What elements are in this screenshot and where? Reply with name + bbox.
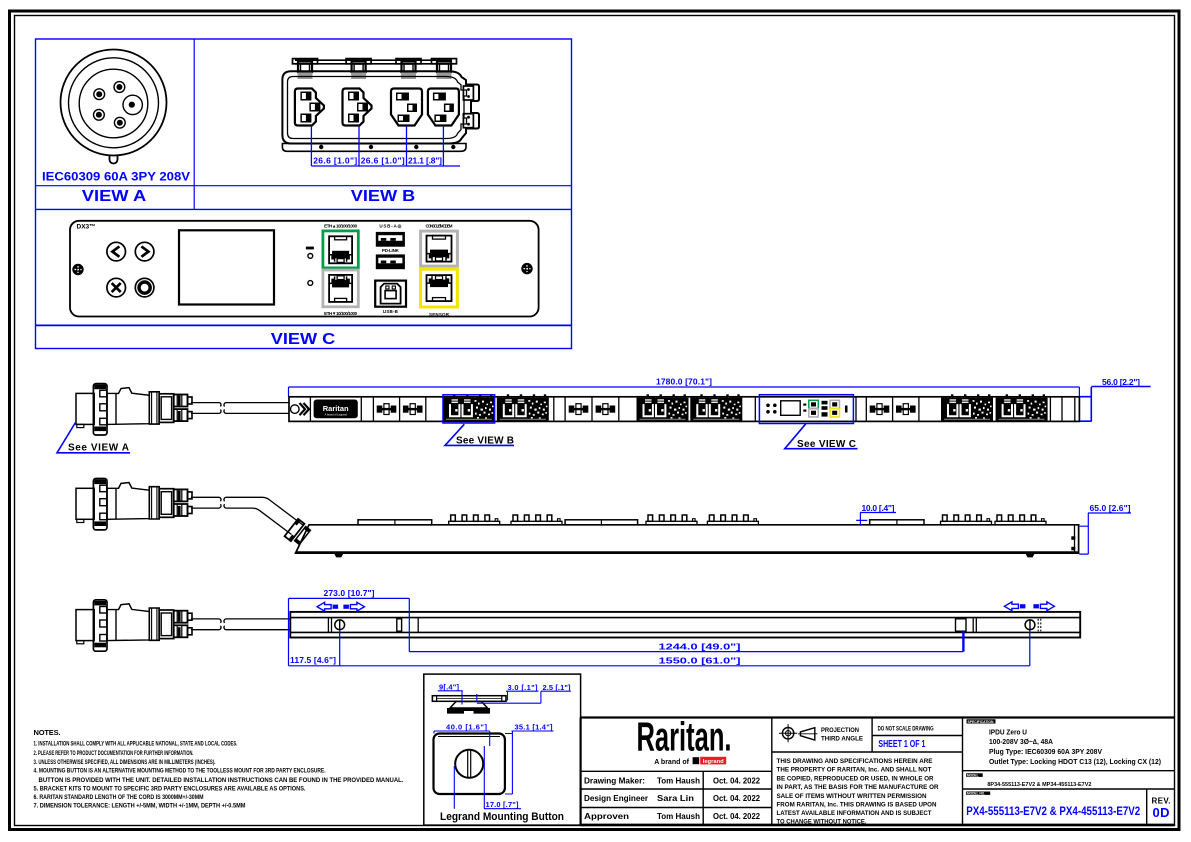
svg-text:VIEW A: VIEW A — [82, 188, 147, 205]
svg-text:TO CHANGE WITHOUT NOTICE.: TO CHANGE WITHOUT NOTICE. — [777, 818, 867, 825]
svg-text:35.1 [1.4"]: 35.1 [1.4"] — [515, 722, 554, 731]
svg-text:DO NOT SCALE DRAWING: DO NOT SCALE DRAWING — [878, 726, 934, 733]
svg-text:273.0 [10.7"]: 273.0 [10.7"] — [324, 588, 375, 598]
svg-text:Legrand Mounting Button: Legrand Mounting Button — [440, 811, 564, 823]
svg-text:USB-A◎: USB-A◎ — [379, 223, 402, 228]
svg-text:VIEW B: VIEW B — [351, 188, 416, 205]
svg-text:10.0 [.4"]: 10.0 [.4"] — [862, 503, 895, 513]
svg-text:VIEW C: VIEW C — [271, 331, 336, 348]
svg-text:CONSOLE/MODEM: CONSOLE/MODEM — [426, 223, 453, 228]
svg-text:FROM RARITAN, Inc. THIS DRAWIN: FROM RARITAN, Inc. THIS DRAWING IS BASED… — [777, 802, 937, 809]
svg-text:Outlet Type: Locking HDOT C13: Outlet Type: Locking HDOT C13 (12), Lock… — [989, 759, 1161, 766]
svg-text:SHEET 1 OF 1: SHEET 1 OF 1 — [878, 739, 925, 750]
svg-text:Sara Lin: Sara Lin — [657, 794, 694, 803]
svg-text:100-208V 3Ø~∆, 48A: 100-208V 3Ø~∆, 48A — [989, 739, 1053, 746]
svg-text:3. UNLESS OTHERWISE SPECIFIED,: 3. UNLESS OTHERWISE SPECIFIED, ALL DIMEN… — [34, 759, 216, 766]
svg-text:0D: 0D — [1153, 805, 1170, 820]
svg-text:MODEL: MODEL — [967, 773, 979, 777]
svg-text:THE PROPERTY OF RARITAN, Inc.: THE PROPERTY OF RARITAN, Inc. AND SHALL … — [777, 767, 932, 774]
svg-text:17.0 [.7"]: 17.0 [.7"] — [486, 800, 520, 809]
svg-text:Tom Haush: Tom Haush — [657, 812, 700, 821]
svg-text:1780.0 [70.1"]: 1780.0 [70.1"] — [656, 377, 712, 387]
svg-text:9[.4"]: 9[.4"] — [439, 683, 460, 692]
svg-text:SENSOR: SENSOR — [429, 312, 450, 317]
svg-text:Design Engineer: Design Engineer — [584, 794, 648, 803]
svg-text:BE COPIED, REPRODUCED OR USED,: BE COPIED, REPRODUCED OR USED, IN WHOLE … — [777, 775, 934, 782]
svg-text:SPECIFICATION: SPECIFICATION — [968, 720, 994, 724]
svg-text:Tom Haush: Tom Haush — [657, 776, 700, 785]
svg-text:A brand of Legrand: A brand of Legrand — [325, 412, 348, 416]
svg-text:65.0 [2.6"]: 65.0 [2.6"] — [1090, 503, 1131, 513]
svg-text:PROJECTION: PROJECTION — [821, 727, 859, 734]
svg-text:SALE OF ITEMS WITHOUT WRITTEN: SALE OF ITEMS WITHOUT WRITTEN PERMISSION — [777, 793, 927, 800]
svg-text:PD-LINK: PD-LINK — [382, 248, 400, 253]
svg-text:IN PART, AS THE BASIS FOR THE: IN PART, AS THE BASIS FOR THE MANUFACTUR… — [777, 784, 939, 791]
svg-text:5. BRACKET KITS TO MOUNT TO SP: 5. BRACKET KITS TO MOUNT TO SPECIFIC 3RD… — [34, 785, 306, 792]
svg-text:1. INSTALLATION SHALL COMPLY W: 1. INSTALLATION SHALL COMPLY WITH ALL AP… — [34, 741, 238, 748]
svg-text:2. PLEASE REFER TO PRODUCT DOC: 2. PLEASE REFER TO PRODUCT DOCUMENTATION… — [34, 750, 194, 757]
svg-text:Plug Type: IEC60309 60A 3PY 20: Plug Type: IEC60309 60A 3PY 208V — [989, 749, 1102, 756]
svg-text:26.6 [1.0"]: 26.6 [1.0"] — [361, 155, 405, 165]
svg-text:THIS DRAWING AND SPECIFICATION: THIS DRAWING AND SPECIFICATIONS HEREIN A… — [777, 758, 933, 765]
svg-text:THIRD ANGLE: THIRD ANGLE — [821, 736, 863, 743]
svg-text:BUTTON IS PROVIDED WITH THE UN: BUTTON IS PROVIDED WITH THE UNIT. DETAIL… — [39, 777, 404, 784]
svg-text:26.6 [1.0"]: 26.6 [1.0"] — [313, 155, 357, 165]
svg-text:PX4-555113-E7V2 & PX4-455113-E: PX4-555113-E7V2 & PX4-455113-E7V2 — [966, 804, 1140, 818]
svg-text:40.0 [1.6"]: 40.0 [1.6"] — [446, 722, 488, 731]
svg-text:1550.0 [61.0"]: 1550.0 [61.0"] — [659, 655, 741, 665]
svg-text:Oct. 04. 2022: Oct. 04. 2022 — [713, 812, 761, 821]
svg-text:Oct. 04. 2022: Oct. 04. 2022 — [713, 794, 761, 803]
svg-text:Raritan.: Raritan. — [637, 714, 732, 760]
svg-text:117.5 [4.6"]: 117.5 [4.6"] — [290, 655, 336, 665]
svg-text:4. MOUNTING BUTTON IS AN ALTER: 4. MOUNTING BUTTON IS AN ALTERNATIVE MOU… — [34, 768, 326, 775]
svg-text:6. RARITAN STANDARD LENGTH OF: 6. RARITAN STANDARD LENGTH OF THE CORD I… — [34, 794, 204, 801]
svg-text:2.5 [.1"]: 2.5 [.1"] — [543, 683, 572, 692]
svg-text:legrand: legrand — [703, 759, 724, 765]
svg-text:Drawing Maker:: Drawing Maker: — [584, 776, 645, 785]
svg-text:ETH▲10/100/1000: ETH▲10/100/1000 — [324, 223, 357, 228]
svg-text:21.1 [.8"]: 21.1 [.8"] — [408, 155, 442, 165]
svg-text:DX3™: DX3™ — [77, 224, 96, 231]
svg-text:ETH▼10/100/1000: ETH▼10/100/1000 — [324, 311, 357, 316]
svg-text:NOTES.: NOTES. — [34, 728, 61, 737]
svg-text:MODEL NO.: MODEL NO. — [967, 791, 985, 795]
svg-text:56.0 [2.2"]: 56.0 [2.2"] — [1102, 377, 1140, 387]
svg-text:3.0 [.1"]: 3.0 [.1"] — [508, 683, 539, 692]
svg-text:Oct. 04. 2022: Oct. 04. 2022 — [713, 776, 761, 785]
svg-text:USB-B: USB-B — [383, 309, 399, 314]
svg-text:1244.0 [49.0"]: 1244.0 [49.0"] — [659, 641, 741, 651]
svg-text:LATEST AVAILABLE INFORMATION A: LATEST AVAILABLE INFORMATION AND IS SUBJ… — [777, 810, 932, 817]
svg-text:Raritan: Raritan — [323, 404, 349, 413]
svg-text:See VIEW B: See VIEW B — [456, 436, 514, 447]
svg-text:Approven: Approven — [584, 812, 629, 821]
svg-text:7. DIMENSION TOLERANCE: LENGTH: 7. DIMENSION TOLERANCE: LENGTH +/-5MM, W… — [34, 802, 246, 809]
svg-text:IEC60309 60A 3PY 208V: IEC60309 60A 3PY 208V — [42, 169, 190, 183]
svg-text:A brand of: A brand of — [654, 759, 689, 766]
svg-text:See VIEW C: See VIEW C — [797, 439, 856, 450]
svg-text:IPDU Zero U: IPDU Zero U — [989, 729, 1027, 736]
svg-text:8P34-555113-E7V2 & MP34-455113: 8P34-555113-E7V2 & MP34-455113-E7V2 — [987, 782, 1091, 788]
svg-text:See VIEW A: See VIEW A — [68, 442, 129, 453]
